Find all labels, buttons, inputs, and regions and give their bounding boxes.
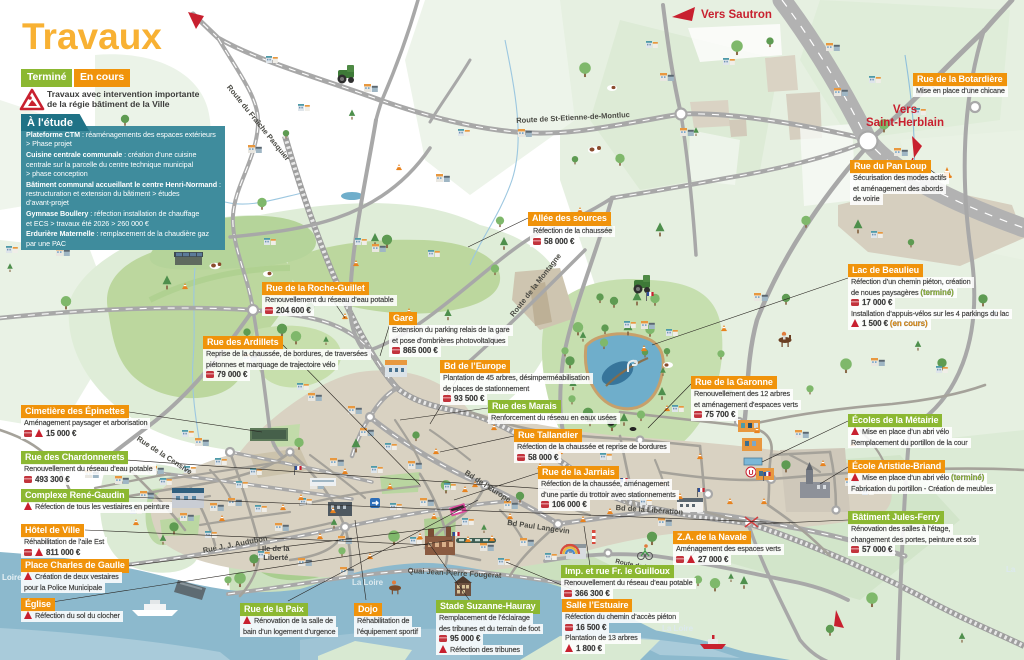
svg-text:U: U: [748, 470, 753, 477]
